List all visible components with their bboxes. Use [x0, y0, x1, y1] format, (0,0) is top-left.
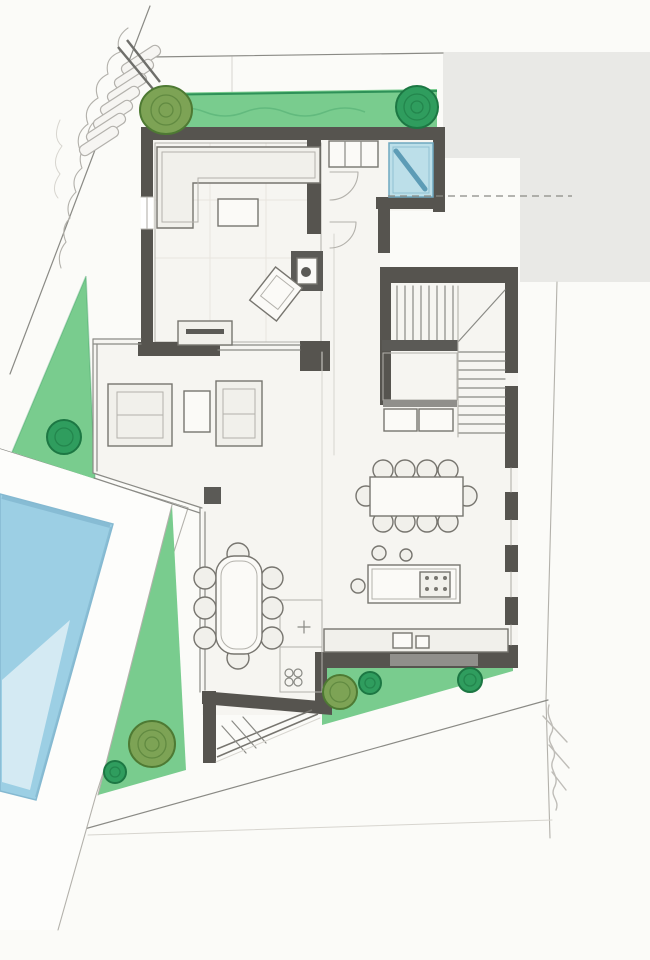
bush-southwest-small [104, 761, 126, 783]
stair-north-wall [380, 267, 518, 283]
hall-east-wall [378, 209, 390, 253]
side-table [184, 391, 210, 432]
chair [261, 567, 283, 589]
chair [194, 627, 216, 649]
east-wall-mid [505, 386, 518, 440]
stair-thin-wall [383, 400, 457, 407]
sink [393, 633, 412, 648]
bush-west [47, 420, 81, 454]
stair-cabinet-right [419, 409, 453, 431]
chair [261, 627, 283, 649]
kitchen-south-wall-light [390, 654, 478, 666]
cooktop [420, 572, 450, 597]
bush-southwest-large [129, 721, 175, 767]
east-wall-upper [505, 283, 518, 373]
vestibule-south-wall [376, 197, 445, 209]
bush-south-mid [359, 672, 381, 694]
pillar [505, 545, 518, 572]
tree-strip-right [396, 86, 438, 128]
bar-stool [400, 549, 412, 561]
column-marker [204, 487, 221, 504]
west-wall-upper [141, 127, 153, 197]
chair [194, 597, 216, 619]
appliance [416, 636, 429, 648]
bush-south-large [323, 675, 357, 709]
dining-table [370, 477, 463, 516]
bush-south-right [458, 668, 482, 692]
west-wall-lower [141, 229, 153, 342]
bar-stool [372, 546, 386, 560]
bar-stool [351, 579, 365, 593]
pillar [505, 440, 518, 468]
floor-plan-canvas [0, 0, 650, 960]
floor-plan-sketch [0, 0, 650, 960]
sideboard-bar [186, 329, 224, 334]
stair-landing-band [382, 340, 458, 351]
stair-cabinet-left [384, 409, 417, 431]
north-wall [143, 127, 445, 140]
pillar [505, 492, 518, 520]
pillar [505, 597, 518, 625]
chair [261, 597, 283, 619]
entry-closet [329, 141, 378, 167]
oval-table [216, 556, 262, 654]
chair [194, 567, 216, 589]
coffee-table [218, 199, 258, 226]
wall-block-center [300, 341, 330, 371]
tree-strip-left [140, 86, 192, 134]
entrance-wall-bar [203, 691, 216, 763]
fireplace-flue [301, 267, 311, 277]
